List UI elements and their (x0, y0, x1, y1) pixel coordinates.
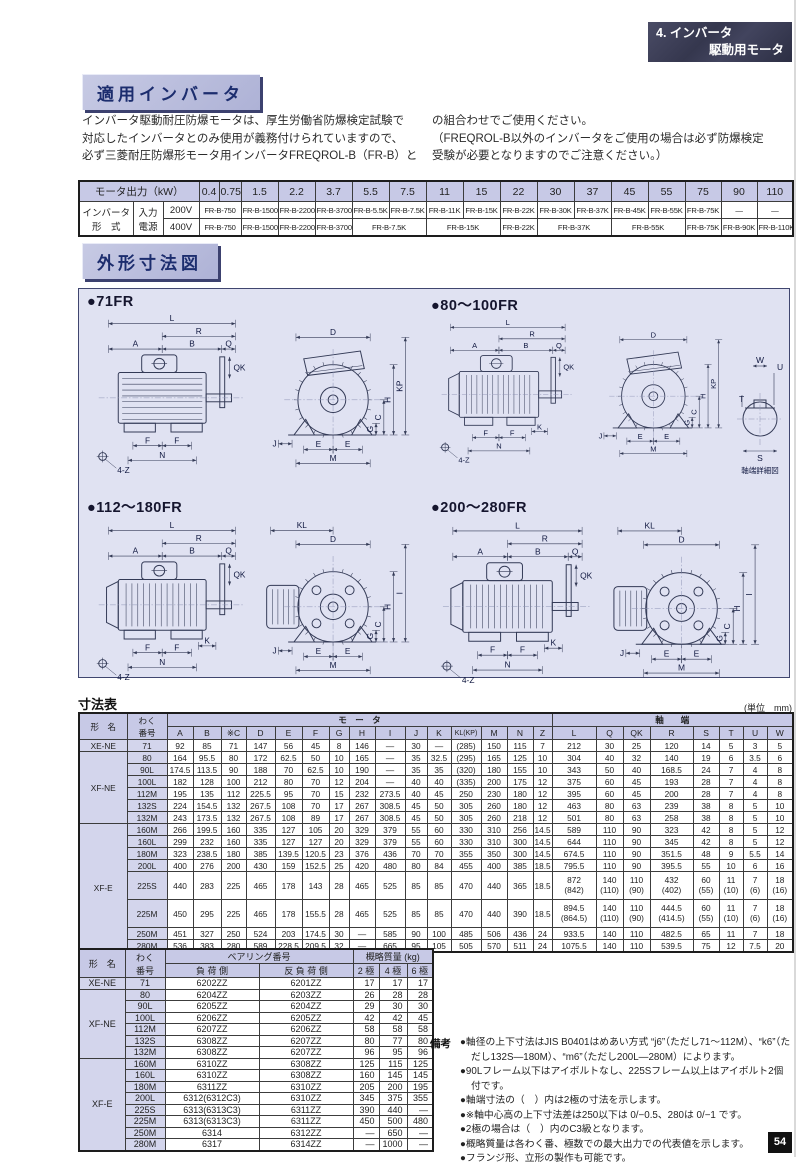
dim-label-s: S (757, 453, 763, 463)
dimension-cell: 379 (375, 836, 405, 848)
dimension-cell: 28 (693, 776, 719, 788)
svg-text:I: I (394, 592, 404, 594)
dimension-cell: 24 (533, 940, 552, 953)
header-cell: 110 (757, 181, 793, 202)
dimension-cell: 40 (596, 752, 623, 764)
dimension-cell: 10 (767, 800, 793, 812)
dimension-cell: 90 (405, 928, 427, 940)
dimension-cell: 212 (246, 776, 275, 788)
chapter-corner-badge: 4. インバータ 駆動用モータ (648, 22, 792, 62)
header-cell: わく番号 (127, 713, 167, 740)
dimension-cell: 108 (275, 800, 302, 812)
remarks-label: 備考 (430, 1036, 460, 1167)
dimension-cell: 180 (507, 800, 533, 812)
dimension-cell: 266 (167, 824, 193, 836)
dim-label-w: W (756, 357, 764, 365)
inverter-model-cell: FR-B-55K (611, 219, 685, 237)
dimension-cell: 8 (329, 740, 349, 752)
dimension-cell: 70 (302, 776, 329, 788)
dimension-cell: 132 (221, 812, 246, 824)
intro-paragraph-left: インバータ駆動耐圧防爆モータは、厚生労働省防爆検定試験で対応したインバータとのみ… (82, 113, 418, 166)
bearing-cell: 6207ZZ (165, 1024, 259, 1036)
header-cell: G (329, 727, 349, 740)
dimension-cell: 173.5 (193, 812, 221, 824)
dimension-cell: 8 (767, 764, 793, 776)
svg-text:KP: KP (709, 379, 718, 389)
dimension-cell: 501 (552, 812, 596, 824)
dimension-cell: 258 (650, 812, 693, 824)
dimension-cell: 89 (302, 812, 329, 824)
frame-number-cell: 132M (125, 1047, 165, 1059)
dimension-cell: 12 (767, 836, 793, 848)
svg-text:E: E (694, 649, 700, 659)
motor-drawing-svg: LRABQQKFFN4-ZDKPHCGJEEM (87, 310, 419, 483)
svg-text:N: N (159, 450, 165, 460)
table-row: 132S6308ZZ6207ZZ807780 (79, 1035, 433, 1047)
svg-text:L: L (170, 313, 175, 323)
header-cell: S (693, 727, 719, 740)
dimension-cell: 40 (623, 764, 650, 776)
inverter-model-cell: FR-B-750 (199, 219, 241, 237)
dimension-cell: 250 (451, 788, 481, 800)
dimension-cell: 40 (405, 788, 427, 800)
dimension-cell: 365 (507, 872, 533, 900)
dimension-cell: 113.5 (193, 764, 221, 776)
header-cell: 2.2 (278, 181, 315, 202)
mass-cell: 58 (407, 1024, 433, 1036)
header-cell: 1.5 (241, 181, 278, 202)
svg-text:G: G (683, 420, 692, 426)
dimension-cell: 108 (275, 812, 302, 824)
mass-cell: 28 (407, 989, 433, 1001)
dimension-cell: 18.5 (533, 860, 552, 872)
svg-text:C: C (373, 414, 383, 420)
svg-text:N: N (496, 442, 501, 451)
dimension-cell: 5 (719, 740, 743, 752)
header-cell: QK (623, 727, 650, 740)
dimension-cell: 160 (221, 836, 246, 848)
dimension-cell: 110 (623, 928, 650, 940)
header-cell: 75 (685, 181, 721, 202)
dimension-cell: 5 (743, 836, 767, 848)
dimension-cell: 4 (743, 788, 767, 800)
dimension-cell: (285) (451, 740, 481, 752)
bearing-cell: 6317 (165, 1139, 259, 1151)
dimension-cell: 644 (552, 836, 596, 848)
model-name-cell: XF-E (79, 1058, 125, 1151)
dimension-cell: 8 (767, 776, 793, 788)
svg-text:D: D (330, 327, 336, 337)
table-row: 250M63146312ZZ―650― (79, 1127, 433, 1139)
frame-number-cell: 100L (125, 1012, 165, 1024)
inverter-model-cell: FR-B-2200 (278, 202, 315, 219)
dimension-cell: 55 (405, 824, 427, 836)
dimension-cell: 160 (221, 824, 246, 836)
dimension-cell: 11(10) (719, 872, 743, 900)
dimension-cell: 482.5 (650, 928, 693, 940)
dimension-cell: 105 (302, 824, 329, 836)
svg-text:E: E (664, 649, 670, 659)
table-row: 90L6205ZZ6204ZZ293030 (79, 1001, 433, 1013)
table-row: 132M243173.5132267.51088917267308.545503… (79, 812, 793, 824)
chapter-badge-line1: 4. インバータ (656, 25, 786, 42)
dimension-cell: 12 (533, 812, 552, 824)
shaft-end-detail-drawing: W U T S 軸端詳細図 (733, 357, 787, 480)
dimension-cell: 165 (349, 752, 375, 764)
dimension-cell: 28 (329, 872, 349, 900)
dimension-cell: 182 (167, 776, 193, 788)
inverter-table: モータ出力（kW）0.40.751.52.23.75.57.5111522303… (78, 180, 794, 237)
svg-text:4-Z: 4-Z (117, 465, 129, 475)
dimension-cell: 15 (329, 788, 349, 800)
note-item: ●※軸中心高の上下寸法差は250以下は 0/−0.5、280は 0/−1 です。 (460, 1109, 792, 1124)
dimension-cell: 225.5 (246, 788, 275, 800)
mass-cell: 45 (407, 1012, 433, 1024)
frame-number-cell: 80 (127, 752, 167, 764)
dimension-table: 形 名わく番号モ ー タ軸 端AB※CDEFGHIJKKL(KP)MNZLQQK… (78, 712, 794, 953)
bearing-cell: 6313(6313C3) (165, 1116, 259, 1128)
svg-text:A: A (477, 546, 483, 556)
section-title-applicable-inverter: 適用インバータ (82, 74, 260, 110)
dimension-cell: 110 (596, 848, 623, 860)
dimension-cell: 506 (481, 928, 507, 940)
dimension-cell: 330 (451, 836, 481, 848)
dimension-cell: 232 (349, 788, 375, 800)
table-row: 180M6311ZZ6310ZZ205200195 (79, 1081, 433, 1093)
inverter-model-cell: FR-B-1500 (241, 219, 278, 237)
header-cell: 3.7 (315, 181, 352, 202)
dimension-cell: 85 (405, 872, 427, 900)
dimension-cell: 180 (507, 788, 533, 800)
dimension-cell: 80 (596, 800, 623, 812)
dimension-cell: 5 (743, 800, 767, 812)
dimension-cell: 7(6) (743, 872, 767, 900)
mass-cell: 80 (353, 1035, 379, 1047)
dimension-cell: 63 (623, 812, 650, 824)
table-row: XF-NE806204ZZ6203ZZ262828 (79, 989, 433, 1001)
inverter-model-cell: FR-B-22K (500, 219, 537, 237)
table-row: 200L6312(6312C3)6310ZZ345375355 (79, 1093, 433, 1105)
dim-label-u: U (777, 362, 783, 372)
dimension-cell: 12 (719, 940, 743, 953)
dimension-cell: 343 (552, 764, 596, 776)
frame-number-cell: 180M (125, 1081, 165, 1093)
dim-label-t: T (739, 394, 744, 404)
dimension-cell: 218 (507, 812, 533, 824)
dimension-cell: 355 (451, 848, 481, 860)
header-cell: 5.5 (352, 181, 389, 202)
table-row: 112M6207ZZ6206ZZ585858 (79, 1024, 433, 1036)
inverter-model-cell: FR-B-55K (648, 202, 685, 219)
mass-cell: 17 (407, 978, 433, 990)
svg-text:QK: QK (563, 363, 574, 372)
dimension-cell: 48 (693, 848, 719, 860)
dimension-cell: 7 (719, 776, 743, 788)
dimension-cell: 200 (221, 860, 246, 872)
bearing-cell: 6308ZZ (259, 1070, 353, 1082)
bearing-cell: 6206ZZ (259, 1024, 353, 1036)
dimension-cell: 28 (693, 788, 719, 800)
mass-cell: 95 (379, 1047, 407, 1059)
dimension-cell: 440 (481, 900, 507, 928)
inverter-model-cell: ― (721, 202, 757, 219)
dimension-cell: 71 (221, 740, 246, 752)
dimension-cell: 45 (623, 776, 650, 788)
dimension-cell: 14 (767, 848, 793, 860)
bearing-cell: 6201ZZ (259, 978, 353, 990)
header-cell: 4 極 (379, 964, 407, 978)
mass-cell: 29 (353, 1001, 379, 1013)
dimension-cell: 132 (221, 800, 246, 812)
inverter-model-cell: FR-B-7.5K (389, 202, 426, 219)
header-cell: 0.75 (219, 181, 241, 202)
dimension-cell: 8 (719, 800, 743, 812)
dimension-cell: 14.5 (533, 848, 552, 860)
dimension-cell: 127 (275, 836, 302, 848)
inverter-model-cell: FR-B-750 (199, 202, 241, 219)
header-cell: わく番号 (125, 949, 165, 978)
header-cell: I (375, 727, 405, 740)
dimension-cell: 40 (427, 776, 451, 788)
dimension-cell: 155.5 (302, 900, 329, 928)
dimension-cell: 80 (275, 776, 302, 788)
dimension-cell: 20 (329, 836, 349, 848)
frame-number-cell: 132S (125, 1035, 165, 1047)
dimension-cell: 19 (693, 752, 719, 764)
inverter-model-cell: FR-B-110K (757, 219, 793, 237)
dimension-cell: 436 (507, 928, 533, 940)
dimension-cell: 50 (596, 764, 623, 776)
dimension-cell: 872(842) (552, 872, 596, 900)
dimension-cell: 14 (693, 740, 719, 752)
remarks-block: 備考 ●軸径の上下寸法はJIS B0401はめあい方式 “j6”（ただし71～1… (430, 1036, 792, 1167)
table-row: 100L182128100212807012204―4040(335)20017… (79, 776, 793, 788)
dimension-table-title: 寸法表 (78, 694, 117, 713)
frame-number-cell: 160L (125, 1070, 165, 1082)
frame-number-cell: 200L (127, 860, 167, 872)
dimension-cell: 5.5 (743, 848, 767, 860)
dimension-cell: 6 (719, 752, 743, 764)
frame-number-cell: 112M (125, 1024, 165, 1036)
frame-number-cell: 90L (125, 1001, 165, 1013)
mass-cell: 42 (379, 1012, 407, 1024)
dimension-cell: 14.5 (533, 824, 552, 836)
svg-text:A: A (133, 339, 139, 349)
dimension-cell: 304 (552, 752, 596, 764)
table-row: 160L6310ZZ6308ZZ160145145 (79, 1070, 433, 1082)
dimension-cell: 465 (349, 900, 375, 928)
dimension-cell: 110 (596, 836, 623, 848)
header-cell: ※C (221, 727, 246, 740)
table-row: 100L6206ZZ6205ZZ424245 (79, 1012, 433, 1024)
frame-number-cell: 225S (125, 1104, 165, 1116)
bearing-cell: 6311ZZ (259, 1104, 353, 1116)
svg-text:M: M (330, 660, 337, 670)
note-item: ●軸端寸法の（ ）内は2極の寸法を示します。 (460, 1094, 792, 1109)
header-cell: 7.5 (389, 181, 426, 202)
dimension-cell: 70 (405, 848, 427, 860)
header-cell: F (302, 727, 329, 740)
mass-cell: 125 (353, 1058, 379, 1070)
table-row: 225S6313(6313C3)6311ZZ390440― (79, 1104, 433, 1116)
header-cell: モータ出力（kW） (79, 181, 199, 202)
voltage-cell: 400V (163, 219, 199, 237)
dimension-cell: 305 (451, 812, 481, 824)
dimension-cell: 385 (246, 848, 275, 860)
dimension-cell: 7 (719, 788, 743, 800)
mass-cell: 42 (353, 1012, 379, 1024)
dimension-cell: 80 (596, 812, 623, 824)
bearing-cell: 6204ZZ (165, 989, 259, 1001)
dimension-cell: 4 (743, 776, 767, 788)
motor-drawing-svg: LRABQQKFFNK4-ZKLDIHCGJEEM (431, 517, 769, 693)
dimension-cell: 7 (743, 928, 767, 940)
header-cell: U (743, 727, 767, 740)
dimension-cell: 12 (533, 776, 552, 788)
dimension-cell: 260 (481, 812, 507, 824)
dimension-cell: 110(90) (623, 872, 650, 900)
dimension-cell: 505 (451, 940, 481, 953)
dimension-cell: 18(16) (767, 900, 793, 928)
table-row: 225S440283225465178143284655258585470440… (79, 872, 793, 900)
dimension-cell: 175 (507, 776, 533, 788)
dimension-cell: 159 (275, 860, 302, 872)
dimension-cell: 480 (375, 860, 405, 872)
dimension-cell: 178 (275, 900, 302, 928)
svg-text:J: J (273, 646, 277, 656)
dimension-cell: 239 (650, 800, 693, 812)
frame-number-cell: 225M (127, 900, 167, 928)
dimension-cell: 50 (302, 752, 329, 764)
dimension-cell: 524 (246, 928, 275, 940)
dimension-cell: 12 (533, 800, 552, 812)
dimension-cell: 200 (481, 776, 507, 788)
model-name-cell: XF-E (79, 824, 127, 953)
svg-text:Q: Q (556, 341, 562, 350)
svg-text:G: G (714, 635, 724, 642)
dimension-cell: 7(6) (743, 900, 767, 928)
mass-cell: 500 (379, 1116, 407, 1128)
bearing-cell: 6205ZZ (165, 1001, 259, 1013)
dimension-cell: 84 (427, 860, 451, 872)
frame-number-cell: 160M (125, 1058, 165, 1070)
svg-text:KL: KL (297, 520, 308, 530)
svg-text:E: E (345, 646, 351, 656)
header-cell: R (650, 727, 693, 740)
drawing-title: ●80～100FR (431, 294, 731, 315)
bearing-cell: 6204ZZ (259, 1001, 353, 1013)
frame-number-cell: 180M (127, 848, 167, 860)
svg-text:M: M (650, 444, 656, 453)
dimension-cell: (295) (451, 752, 481, 764)
dimension-cell: 379 (375, 824, 405, 836)
frame-number-cell: 71 (125, 978, 165, 990)
inverter-model-cell: FR-B-75K (685, 219, 721, 237)
mass-cell: 375 (379, 1093, 407, 1105)
dimension-cell: 178 (275, 872, 302, 900)
mass-cell: 17 (353, 978, 379, 990)
dimension-cell: 10 (533, 752, 552, 764)
dimension-cell: 451 (167, 928, 193, 940)
dimension-cell: 200 (650, 788, 693, 800)
header-cell: Q (596, 727, 623, 740)
dimension-cell: 45 (405, 812, 427, 824)
mass-cell: 26 (353, 989, 379, 1001)
page-number: 54 (768, 1132, 792, 1153)
dimension-cell: 70 (302, 800, 329, 812)
inverter-model-cell: FR-B-1500 (241, 202, 278, 219)
table-row: 132M6308ZZ6207ZZ969596 (79, 1047, 433, 1059)
dimension-cell: 85 (427, 900, 451, 928)
row-label: インバータ形 式 (79, 202, 133, 237)
dimension-cell: 125 (507, 752, 533, 764)
inverter-model-cell: ― (757, 202, 793, 219)
dimension-cell: 55 (693, 860, 719, 872)
dimension-cell: 11 (719, 928, 743, 940)
header-group-bearing: ベアリング番号 (165, 949, 353, 964)
section-title-outline-dimensions: 外形寸法図 (82, 243, 218, 279)
inverter-model-cell: FR-B-5.5K (352, 202, 389, 219)
dimension-cell: 470 (451, 872, 481, 900)
dimension-cell: 140 (596, 928, 623, 940)
dimension-cell: 110 (596, 824, 623, 836)
dimension-cell: 6 (767, 752, 793, 764)
mass-cell: 58 (379, 1024, 407, 1036)
bearing-cell: 6207ZZ (259, 1047, 353, 1059)
table-row: XF-E160M266199.5160335127105203293795560… (79, 824, 793, 836)
dimension-cell: 267 (349, 812, 375, 824)
dimension-cell: 95 (275, 788, 302, 800)
svg-text:G: G (365, 633, 375, 639)
voltage-cell: 200V (163, 202, 199, 219)
svg-text:R: R (542, 533, 548, 543)
dimension-cell: 267.5 (246, 812, 275, 824)
mass-cell: 440 (379, 1104, 407, 1116)
dimension-cell: 100 (221, 776, 246, 788)
dimension-cell: 110(90) (623, 900, 650, 928)
mass-cell: 450 (353, 1116, 379, 1128)
svg-text:E: E (664, 432, 669, 441)
svg-text:R: R (196, 533, 202, 543)
dimension-cell: 299 (167, 836, 193, 848)
dimension-cell: 85 (427, 872, 451, 900)
table-row: 280M63176314ZZ―1000― (79, 1139, 433, 1151)
dimension-cell: 225 (221, 900, 246, 928)
dimension-cell: 310 (481, 836, 507, 848)
dimension-cell: 140 (596, 940, 623, 953)
motor-drawing-112-180fr: ●112～180FR LRABQQKFFNK4-ZKLDIHCGJEEM (87, 496, 419, 690)
dimension-cell: ― (375, 764, 405, 776)
svg-text:E: E (316, 646, 322, 656)
model-name-cell: XE-NE (79, 740, 127, 752)
dimension-cell: 243 (167, 812, 193, 824)
mass-cell: 160 (353, 1070, 379, 1082)
frame-number-cell: 280M (125, 1139, 165, 1151)
dimension-cell: 436 (375, 848, 405, 860)
header-cell: 22 (500, 181, 537, 202)
header-cell: W (767, 727, 793, 740)
dimension-cell: 430 (246, 860, 275, 872)
note-item: ●2極の場合は（ ）内のC3級となります。 (460, 1123, 792, 1138)
bearing-cell: 6314 (165, 1127, 259, 1139)
dimension-cell: 16 (767, 860, 793, 872)
dimension-cell: 18.5 (533, 900, 552, 928)
table-row: 200L400276200430159152.52542048080844554… (79, 860, 793, 872)
dimension-cell: 525 (375, 900, 405, 928)
dimension-cell: 90 (623, 824, 650, 836)
frame-number-cell: 160L (127, 836, 167, 848)
svg-text:F: F (145, 642, 150, 652)
